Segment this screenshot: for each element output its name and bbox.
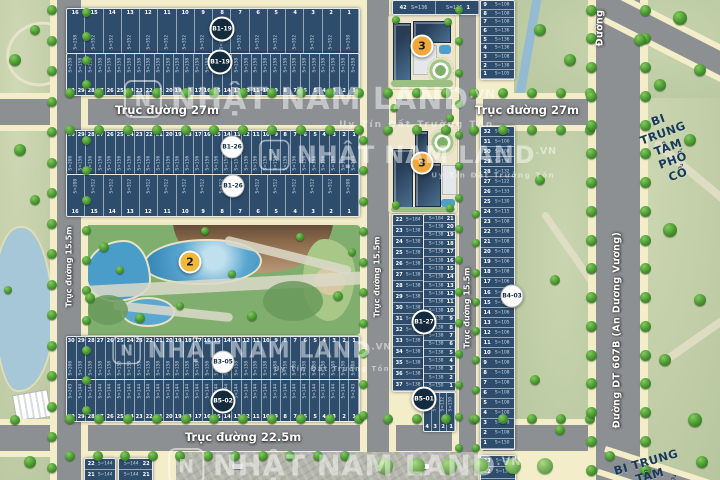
watermark: NNHẬT NAM LAND.VNUy Tín Đất Trường Tồn — [124, 80, 496, 118]
watermark-logo-icon: N — [259, 140, 289, 170]
watermark-suffix: .VN — [371, 341, 391, 352]
watermark-suffix: .VN — [496, 454, 522, 467]
watermark-suffix: .VN — [535, 145, 557, 156]
watermark-tagline: Uy Tín Đất Trường Tồn — [274, 365, 390, 373]
watermark-text: NHẬT NAM LAND.VNUy Tín Đất Trường Tồn — [148, 337, 392, 363]
watermark-brand: NHẬT NAM LAND — [148, 337, 372, 363]
watermark-suffix: .VN — [469, 87, 496, 101]
master-plan-map: 16S=25815S=35214S=35213S=35212S=35211S=3… — [0, 0, 720, 480]
watermark-text: NHẬT NAM LAND.VNUy Tín Đất Trường Tồn — [213, 449, 522, 480]
watermark-tagline: Uy Tín Đất Trường Tồn — [339, 120, 494, 130]
watermark: NNHẬT NAM LAND.VNUy Tín Đất Trường Tồn — [259, 140, 557, 170]
watermark-brand: NHẬT NAM LAND — [171, 82, 469, 117]
watermark-text: NHẬT NAM LAND.VNUy Tín Đất Trường Tồn — [297, 141, 557, 169]
watermark-logo-icon: N — [168, 448, 204, 480]
watermark-text: NHẬT NAM LAND.VNUy Tín Đất Trường Tồn — [171, 82, 496, 117]
watermark-brand: NHẬT NAM LAND — [213, 449, 496, 480]
watermark-logo-icon: N — [112, 336, 141, 365]
watermark-logo-icon: N — [124, 80, 162, 118]
watermark-tagline: Uy Tín Đất Trường Tồn — [431, 171, 555, 179]
watermark-brand: NHẬT NAM LAND — [297, 141, 536, 169]
watermark: NNHẬT NAM LAND.VNUy Tín Đất Trường Tồn — [168, 448, 522, 480]
watermark: NNHẬT NAM LAND.VNUy Tín Đất Trường Tồn — [112, 336, 391, 365]
watermark-layer: NNHẬT NAM LAND.VNUy Tín Đất Trường TồnNN… — [0, 0, 720, 480]
